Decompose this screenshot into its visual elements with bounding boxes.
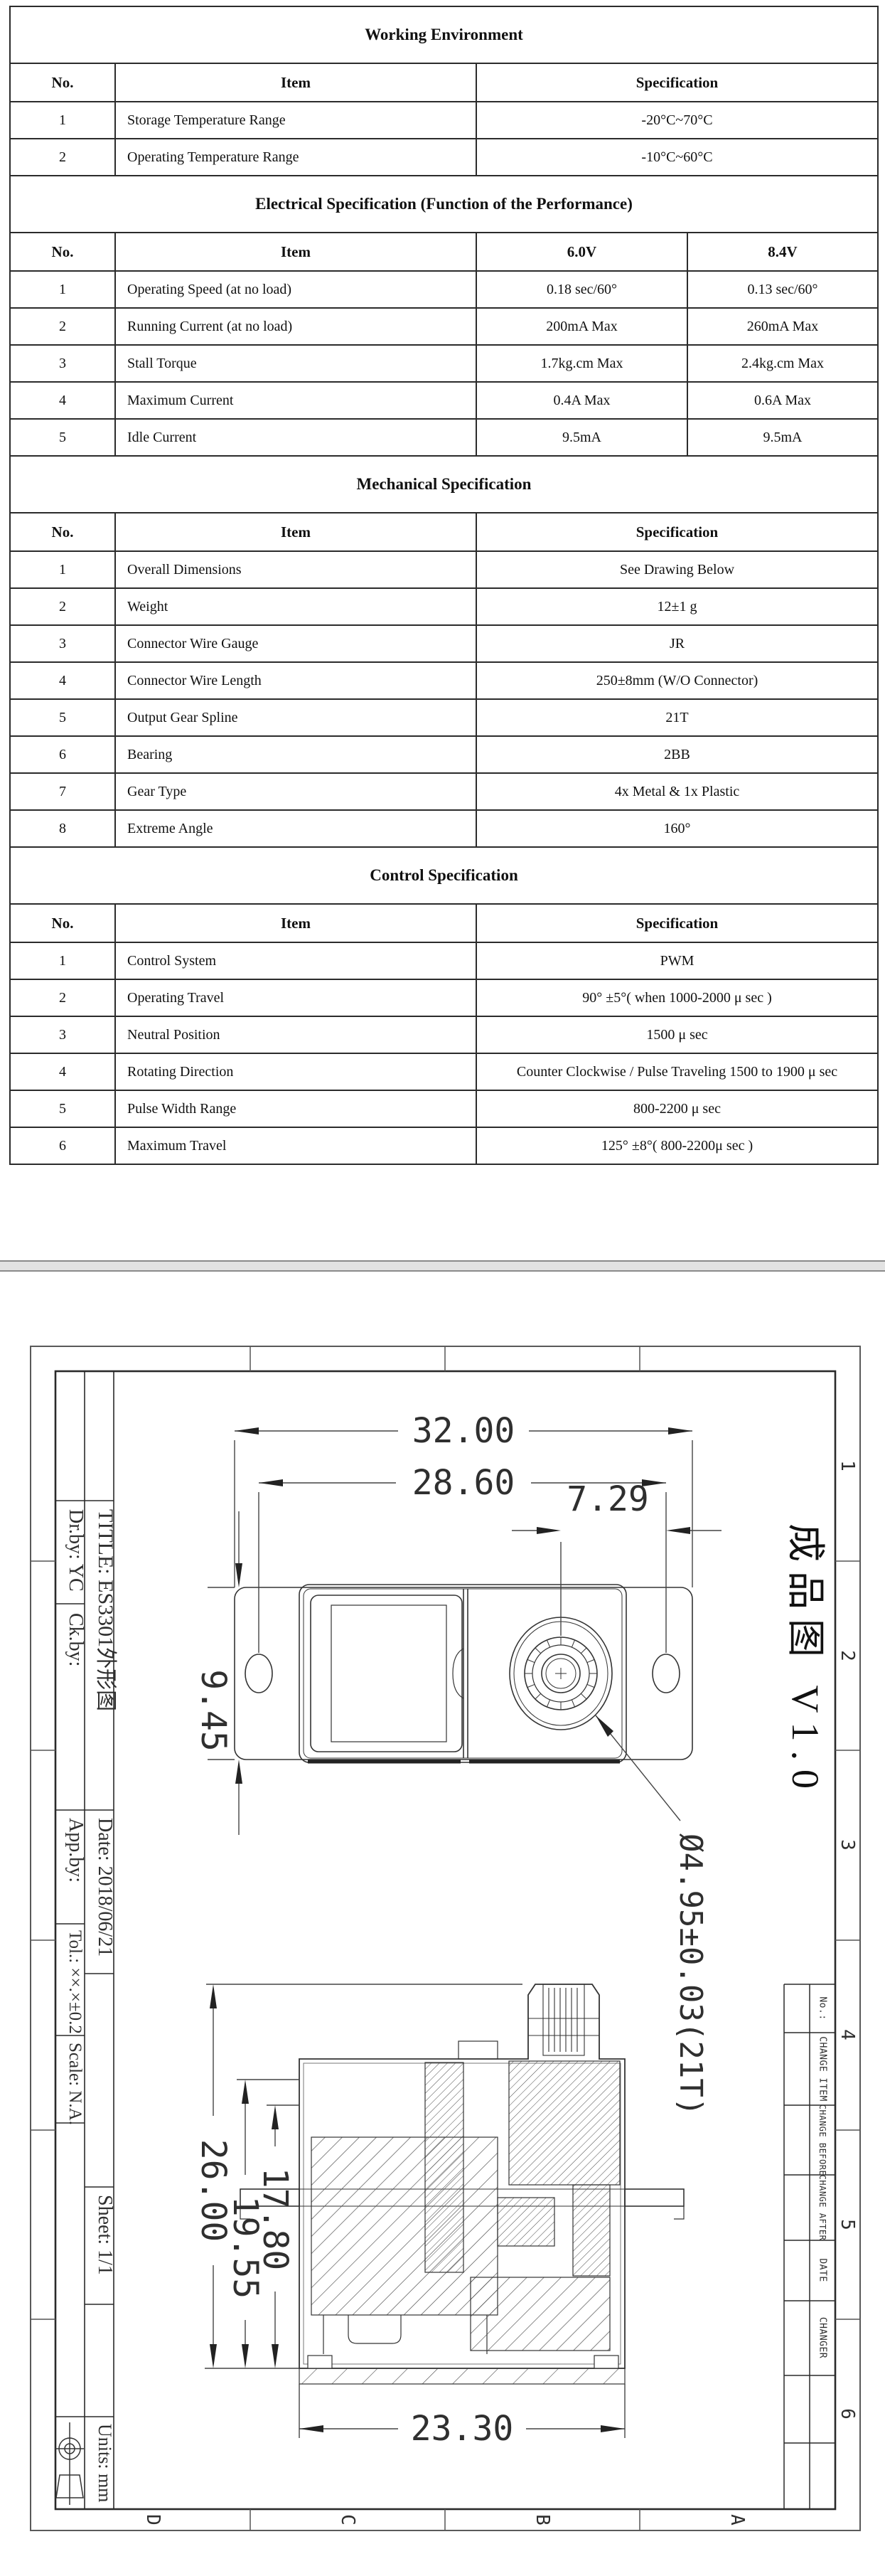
table-cell: 125° ±8°( 800-2200μ sec ): [476, 1127, 877, 1164]
grid-letter: C: [337, 2514, 358, 2526]
table-cell: Neutral Position: [114, 1016, 476, 1053]
dim-body-width: 23.30: [411, 2409, 514, 2449]
table-cell: Bearing: [114, 735, 476, 772]
table-cell: Overall Dimensions: [114, 550, 476, 587]
grid-letter: B: [532, 2514, 553, 2526]
revision-header: CHANGE BEFORE: [817, 2104, 827, 2176]
table-cell: 1.7kg.cm Max: [476, 344, 687, 381]
table-cell: 160°: [476, 809, 877, 846]
revision-header: No.:: [817, 1996, 828, 2020]
table-header-cell: 8.4V: [687, 232, 877, 270]
revision-header: CHANGER: [817, 2317, 828, 2358]
table-cell: Maximum Current: [114, 381, 476, 418]
table-header-cell: 6.0V: [476, 232, 687, 270]
table-cell: 250±8mm (W/O Connector): [476, 661, 877, 698]
table-cell: 0.6A Max: [687, 381, 877, 418]
spec-table-working-environment: Working EnvironmentNo.ItemSpecification1…: [11, 7, 877, 175]
table-cell: 800-2200 μ sec: [476, 1090, 877, 1127]
table-cell: 5: [11, 698, 114, 735]
revision-header: CHANGE AFTER: [817, 2175, 827, 2241]
table-title: Mechanical Specification: [11, 455, 877, 512]
table-cell: Stall Torque: [114, 344, 476, 381]
revision-header: DATE: [817, 2258, 828, 2282]
table-cell: 8: [11, 809, 114, 846]
grid-number: 5: [837, 2219, 858, 2230]
table-cell: 5: [11, 1090, 114, 1127]
dim-depth: 9.45: [193, 1669, 233, 1752]
table-cell: 2: [11, 979, 114, 1016]
table-header-cell: No.: [11, 63, 114, 101]
dim-width: 32.00: [412, 1411, 515, 1451]
spec-table-electrical: Electrical Specification (Function of th…: [11, 175, 877, 455]
table-cell: 2BB: [476, 735, 877, 772]
table-header-cell: Specification: [476, 512, 877, 550]
table-cell: Maximum Travel: [114, 1127, 476, 1164]
table-cell: 2: [11, 587, 114, 624]
dim-inner-height: 17.80: [255, 2168, 295, 2271]
table-cell: 1500 μ sec: [476, 1016, 877, 1053]
scale: Scale: N.A.: [65, 2043, 85, 2125]
table-cell: 1: [11, 101, 114, 138]
table-cell: JR: [476, 624, 877, 661]
table-cell: See Drawing Below: [476, 550, 877, 587]
table-cell: Operating Travel: [114, 979, 476, 1016]
grid-letter: D: [142, 2514, 163, 2526]
table-cell: 0.4A Max: [476, 381, 687, 418]
table-cell: 12±1 g: [476, 587, 877, 624]
table-cell: 3: [11, 624, 114, 661]
table-cell: 4: [11, 661, 114, 698]
table-cell: -10°C~60°C: [476, 138, 877, 175]
table-cell: 5: [11, 418, 114, 455]
table-cell: 0.13 sec/60°: [687, 270, 877, 307]
dim-shaft-offset: 7.29: [567, 1479, 649, 1519]
table-cell: Operating Temperature Range: [114, 138, 476, 175]
table-grid: No.ItemSpecification1Overall DimensionsS…: [11, 512, 877, 846]
table-cell: 1: [11, 942, 114, 979]
table-cell: 260mA Max: [687, 307, 877, 344]
table-cell: 2.4kg.cm Max: [687, 344, 877, 381]
table-header-cell: Item: [114, 232, 476, 270]
table-grid: No.Item6.0V8.4V1Operating Speed (at no l…: [11, 232, 877, 455]
table-cell: 4: [11, 1053, 114, 1090]
table-cell: 1: [11, 550, 114, 587]
drawn-by: Dr.by: YC: [65, 1509, 87, 1592]
table-cell: Connector Wire Length: [114, 661, 476, 698]
table-header-cell: Item: [114, 903, 476, 942]
table-cell: 21T: [476, 698, 877, 735]
spec-table-control: Control SpecificationNo.ItemSpecificatio…: [11, 846, 877, 1164]
drawing-title: TITLE: ES3301外形图: [94, 1509, 117, 1711]
grid-letter: A: [726, 2514, 748, 2526]
table-cell: Control System: [114, 942, 476, 979]
checked-by: Ck.by:: [65, 1613, 87, 1666]
table-header-cell: Specification: [476, 903, 877, 942]
dim-hole-span: 28.60: [412, 1463, 515, 1503]
table-cell: 9.5mA: [476, 418, 687, 455]
specification-tables-page: Working EnvironmentNo.ItemSpecification1…: [9, 6, 879, 1165]
units: Units: mm: [95, 2424, 115, 2503]
table-header-cell: No.: [11, 232, 114, 270]
table-cell: 3: [11, 344, 114, 381]
table-header-cell: No.: [11, 903, 114, 942]
table-cell: 90° ±5°( when 1000-2000 μ sec ): [476, 979, 877, 1016]
table-cell: Connector Wire Gauge: [114, 624, 476, 661]
table-cell: Pulse Width Range: [114, 1090, 476, 1127]
table-cell: -20°C~70°C: [476, 101, 877, 138]
table-cell: 2: [11, 307, 114, 344]
table-cell: 3: [11, 1016, 114, 1053]
table-cell: 4: [11, 381, 114, 418]
table-cell: Extreme Angle: [114, 809, 476, 846]
sheet-number: Sheet: 1/1: [94, 2195, 116, 2275]
table-title: Working Environment: [11, 7, 877, 63]
table-cell: 2: [11, 138, 114, 175]
table-cell: 200mA Max: [476, 307, 687, 344]
table-cell: Rotating Direction: [114, 1053, 476, 1090]
grid-number: 2: [837, 1650, 858, 1661]
engineering-drawing-sheet: 1 2 3 4 5 6 D C B A Dr.by: YC Ck.by: App…: [0, 1316, 885, 2576]
table-cell: 1: [11, 270, 114, 307]
table-cell: 9.5mA: [687, 418, 877, 455]
grid-number: 1: [837, 1460, 858, 1471]
grid-number: 4: [837, 2029, 858, 2040]
grid-number: 6: [837, 2408, 858, 2420]
table-cell: 4x Metal & 1x Plastic: [476, 772, 877, 809]
table-grid: No.ItemSpecification1Storage Temperature…: [11, 63, 877, 175]
table-cell: Output Gear Spline: [114, 698, 476, 735]
dim-spline: Ø4.95±0.03(21T): [672, 1833, 709, 2116]
table-cell: 7: [11, 772, 114, 809]
table-cell: 6: [11, 1127, 114, 1164]
table-cell: 6: [11, 735, 114, 772]
table-title: Electrical Specification (Function of th…: [11, 175, 877, 232]
table-header-cell: Item: [114, 512, 476, 550]
revision-header: CHANGE ITEM: [817, 2036, 828, 2102]
table-cell: Counter Clockwise / Pulse Traveling 1500…: [476, 1053, 877, 1090]
table-cell: Operating Speed (at no load): [114, 270, 476, 307]
date: Date: 2018/06/21: [94, 1818, 116, 1957]
spec-table-mechanical: Mechanical SpecificationNo.ItemSpecifica…: [11, 455, 877, 846]
version-label: 成品图 V1.0: [784, 1523, 827, 1798]
table-cell: Idle Current: [114, 418, 476, 455]
table-grid: No.ItemSpecification1Control SystemPWM2O…: [11, 903, 877, 1164]
table-title: Control Specification: [11, 846, 877, 903]
page-divider: [0, 1260, 885, 1272]
table-cell: Weight: [114, 587, 476, 624]
table-cell: Running Current (at no load): [114, 307, 476, 344]
approved-by: App.by:: [65, 1818, 87, 1883]
table-header-cell: No.: [11, 512, 114, 550]
table-header-cell: Specification: [476, 63, 877, 101]
grid-number: 3: [837, 1839, 858, 1851]
table-cell: 0.18 sec/60°: [476, 270, 687, 307]
tolerance: Tol.: ××.×±0.2: [65, 1930, 85, 2034]
table-cell: Storage Temperature Range: [114, 101, 476, 138]
table-header-cell: Item: [114, 63, 476, 101]
table-cell: PWM: [476, 942, 877, 979]
table-cell: Gear Type: [114, 772, 476, 809]
